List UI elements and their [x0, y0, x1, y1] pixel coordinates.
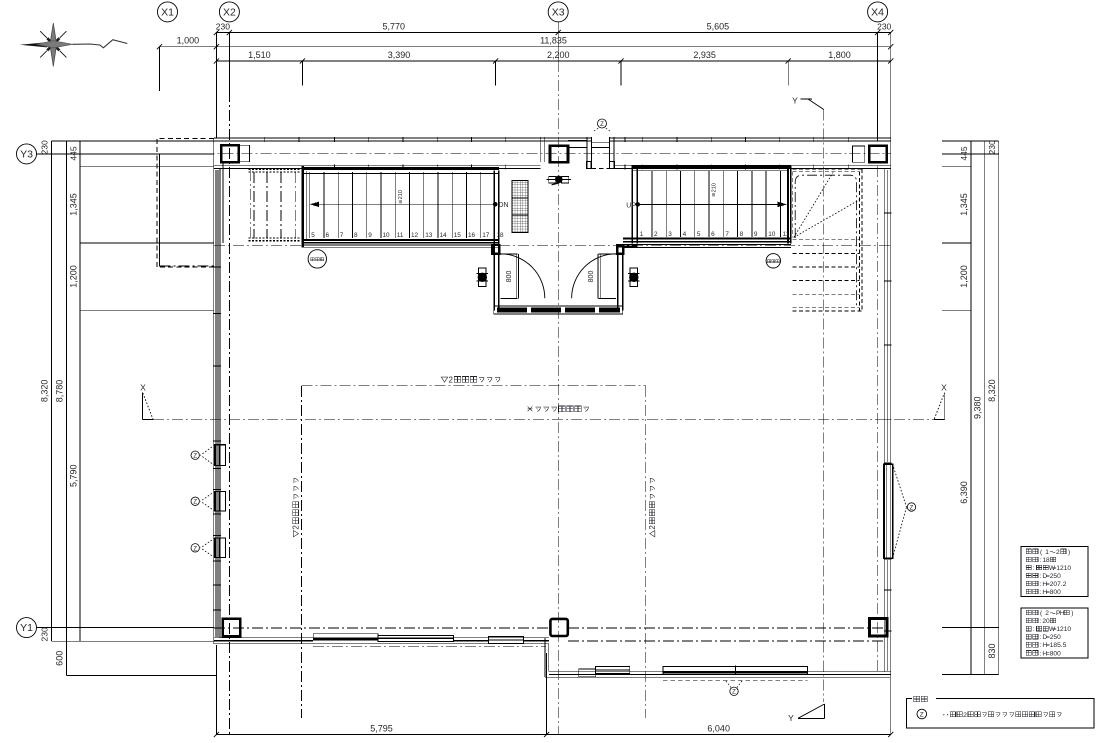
svg-text:230: 230 [40, 627, 50, 641]
svg-text:2,935: 2,935 [693, 50, 716, 60]
svg-text:5: 5 [1063, 642, 1067, 649]
svg-text:14: 14 [440, 232, 448, 239]
svg-text:13: 13 [425, 232, 433, 239]
svg-text:1,200: 1,200 [69, 265, 79, 288]
svg-text:≌210: ≌210 [711, 183, 717, 197]
svg-text:Z: Z [193, 454, 197, 460]
svg-text:0: 0 [1067, 565, 1071, 572]
svg-text:6,390: 6,390 [959, 481, 969, 504]
svg-text:15: 15 [454, 232, 462, 239]
svg-text:UP: UP [626, 202, 636, 209]
svg-text:1: 1 [1045, 549, 1049, 556]
svg-text:DN: DN [499, 202, 509, 209]
svg-text:3,390: 3,390 [388, 50, 411, 60]
svg-text:X: X [941, 383, 947, 393]
svg-text::: : [1039, 634, 1041, 641]
svg-text:1,800: 1,800 [828, 50, 851, 60]
svg-text:6: 6 [326, 232, 330, 239]
svg-text::: : [1039, 573, 1041, 580]
svg-text:Y: Y [788, 713, 794, 723]
svg-text:230: 230 [216, 22, 230, 32]
svg-text:17: 17 [482, 232, 490, 239]
svg-text:230: 230 [877, 22, 891, 32]
svg-text:10: 10 [383, 232, 391, 239]
svg-text:11: 11 [782, 231, 789, 238]
svg-text:600: 600 [55, 651, 65, 666]
svg-text::: : [1033, 626, 1035, 633]
svg-text:2: 2 [963, 712, 967, 719]
svg-text:2: 2 [654, 231, 658, 238]
svg-text:230: 230 [40, 140, 50, 154]
svg-text:2: 2 [648, 525, 657, 530]
svg-text:2: 2 [1045, 610, 1049, 617]
svg-text:5,605: 5,605 [707, 22, 730, 32]
svg-text:0: 0 [1046, 618, 1050, 625]
svg-text:5: 5 [311, 232, 315, 239]
svg-text:Z: Z [193, 500, 197, 506]
svg-text:9,380: 9,380 [973, 396, 983, 419]
svg-text::: : [1039, 589, 1041, 596]
svg-text:Z: Z [732, 690, 736, 696]
svg-text:800: 800 [506, 271, 513, 283]
svg-text:1: 1 [640, 231, 644, 238]
svg-text:): ) [1071, 610, 1073, 617]
svg-text:0: 0 [1057, 650, 1061, 657]
svg-text:8: 8 [740, 231, 744, 238]
svg-text:X4: X4 [871, 6, 884, 18]
svg-text::: : [1039, 557, 1041, 564]
svg-text:Y3: Y3 [20, 148, 33, 160]
svg-text::: : [1039, 618, 1041, 625]
svg-text::: : [1039, 581, 1041, 588]
svg-text:Z: Z [600, 122, 604, 128]
svg-text:8,320: 8,320 [987, 379, 997, 402]
svg-text:230: 230 [987, 140, 997, 154]
svg-text:2: 2 [292, 525, 301, 530]
svg-text:≌210: ≌210 [398, 190, 404, 204]
svg-text:445: 445 [959, 146, 969, 160]
svg-text:5,770: 5,770 [383, 22, 406, 32]
svg-text:7: 7 [725, 231, 729, 238]
svg-text:5,790: 5,790 [69, 464, 79, 487]
svg-text:1,345: 1,345 [69, 193, 79, 216]
svg-text:Z: Z [910, 505, 914, 511]
svg-text:X2: X2 [223, 6, 236, 18]
svg-text:3: 3 [668, 231, 672, 238]
svg-text:8: 8 [1046, 557, 1050, 564]
svg-text:0: 0 [1057, 573, 1061, 580]
svg-text:0: 0 [1057, 634, 1061, 641]
svg-text:1,345: 1,345 [959, 193, 969, 216]
svg-text::: : [1039, 650, 1041, 657]
svg-text:Z: Z [193, 546, 197, 552]
svg-text:8,320: 8,320 [40, 380, 50, 403]
svg-text:0: 0 [1067, 626, 1071, 633]
svg-text:X: X [140, 383, 146, 393]
svg-text:800: 800 [588, 271, 595, 283]
svg-text:6,040: 6,040 [707, 724, 730, 734]
svg-text:11: 11 [397, 232, 404, 239]
svg-text:5,795: 5,795 [370, 724, 393, 734]
svg-text:9: 9 [368, 232, 372, 239]
svg-text:830: 830 [987, 643, 997, 658]
svg-text:12: 12 [411, 232, 419, 239]
svg-text:4: 4 [683, 231, 687, 238]
svg-text:Z: Z [920, 712, 924, 719]
svg-text:2: 2 [1063, 581, 1067, 588]
svg-text:9: 9 [754, 231, 758, 238]
svg-text:18: 18 [497, 232, 505, 239]
svg-text:6: 6 [711, 231, 715, 238]
svg-text:8,780: 8,780 [55, 380, 65, 403]
svg-text:5: 5 [697, 231, 701, 238]
svg-text:H: H [1060, 610, 1065, 617]
svg-text:11,835: 11,835 [540, 36, 567, 46]
svg-text:2: 2 [1056, 549, 1060, 556]
svg-text:16: 16 [468, 232, 476, 239]
svg-text::: : [1033, 565, 1035, 572]
svg-text:1,000: 1,000 [177, 36, 200, 46]
svg-text:X1: X1 [161, 6, 174, 18]
svg-text:Y1: Y1 [20, 622, 33, 634]
svg-text:1,510: 1,510 [248, 50, 271, 60]
svg-text:Y: Y [792, 96, 798, 106]
svg-text:7: 7 [340, 232, 344, 239]
svg-text:): ) [1068, 549, 1070, 556]
svg-text:0: 0 [1057, 589, 1061, 596]
svg-text:X3: X3 [552, 6, 565, 18]
svg-text::: : [1039, 642, 1041, 649]
svg-text:2: 2 [449, 375, 454, 384]
svg-text:1,200: 1,200 [959, 265, 969, 288]
svg-text:8: 8 [354, 232, 358, 239]
svg-text:10: 10 [768, 231, 776, 238]
